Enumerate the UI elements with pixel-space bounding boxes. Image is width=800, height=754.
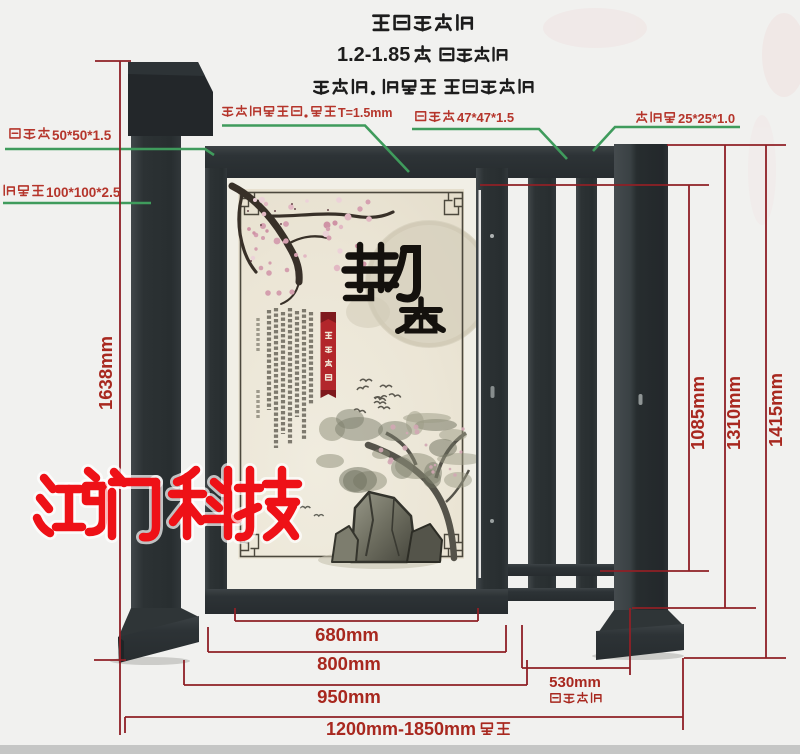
svg-text:50*50*1.5: 50*50*1.5 (52, 128, 112, 143)
svg-text:T=1.5mm: T=1.5mm (338, 106, 393, 120)
svg-text:25*25*1.0: 25*25*1.0 (678, 111, 735, 126)
svg-text:1310mm: 1310mm (723, 376, 744, 450)
svg-text:1638mm: 1638mm (95, 336, 116, 410)
svg-text:1085mm: 1085mm (687, 376, 708, 450)
svg-text:1.2-1.85: 1.2-1.85 (337, 44, 410, 66)
svg-text:800mm: 800mm (317, 653, 381, 674)
svg-text:1200mm-1850mm: 1200mm-1850mm (326, 719, 476, 739)
svg-text:680mm: 680mm (315, 624, 379, 645)
svg-text:950mm: 950mm (317, 686, 381, 707)
svg-text:47*47*1.5: 47*47*1.5 (457, 110, 514, 125)
svg-text:530mm: 530mm (549, 674, 601, 691)
svg-text:100*100*2.5: 100*100*2.5 (46, 185, 121, 200)
svg-text:1415mm: 1415mm (765, 373, 786, 447)
